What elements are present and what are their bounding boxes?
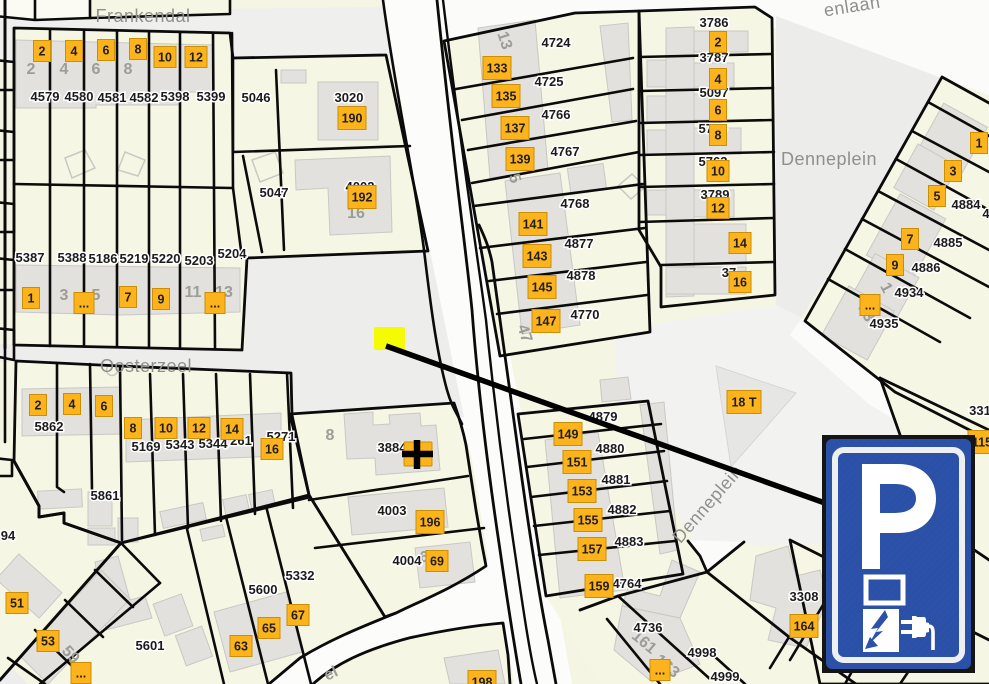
svg-text:5398: 5398 [161, 89, 190, 104]
svg-text:4882: 4882 [608, 502, 637, 517]
svg-text:133: 133 [487, 62, 508, 76]
svg-text:5204: 5204 [218, 246, 248, 261]
svg-text:4: 4 [60, 61, 69, 78]
svg-text:51: 51 [10, 597, 24, 611]
svg-text:4880: 4880 [596, 441, 625, 456]
svg-text:155: 155 [578, 514, 599, 528]
svg-text:4724: 4724 [542, 35, 572, 50]
svg-text:5219: 5219 [120, 251, 149, 266]
svg-text:137: 137 [505, 122, 526, 136]
svg-text:4877: 4877 [565, 236, 594, 251]
svg-text:5399: 5399 [197, 89, 226, 104]
svg-text:18 T: 18 T [731, 396, 756, 410]
svg-text:151: 151 [567, 456, 588, 470]
svg-text:69: 69 [430, 555, 444, 569]
svg-text:9: 9 [892, 259, 899, 273]
svg-text:5388: 5388 [58, 250, 87, 265]
svg-text:147: 147 [536, 315, 557, 329]
svg-text:4: 4 [69, 398, 76, 412]
svg-text:4886: 4886 [912, 260, 941, 275]
svg-text:5601: 5601 [136, 638, 165, 653]
svg-text:67: 67 [291, 609, 305, 623]
svg-text:4580: 4580 [65, 89, 94, 104]
svg-text:141: 141 [523, 218, 544, 232]
svg-text:9: 9 [158, 293, 165, 307]
svg-text:5046: 5046 [242, 90, 271, 105]
svg-text:3308: 3308 [790, 589, 819, 604]
svg-text:...: ... [655, 664, 665, 678]
svg-text:4736: 4736 [634, 620, 663, 635]
svg-text:1: 1 [976, 137, 983, 151]
svg-text:4003: 4003 [378, 503, 407, 518]
svg-text:6: 6 [715, 104, 722, 118]
svg-text:4766: 4766 [542, 107, 571, 122]
svg-text:16: 16 [733, 276, 747, 290]
svg-text:5343: 5343 [166, 437, 195, 452]
svg-text:4579: 4579 [31, 89, 60, 104]
svg-text:...: ... [865, 299, 875, 313]
svg-text:10: 10 [159, 422, 173, 436]
svg-text:12: 12 [192, 422, 206, 436]
svg-text:190: 190 [342, 112, 363, 126]
svg-text:14: 14 [733, 237, 747, 251]
svg-text:4004: 4004 [393, 553, 423, 568]
svg-text:3786: 3786 [700, 15, 729, 30]
svg-text:4935: 4935 [870, 316, 899, 331]
svg-text:3: 3 [950, 165, 957, 179]
svg-text:5600: 5600 [249, 582, 278, 597]
svg-text:16: 16 [265, 443, 279, 457]
svg-text:4934: 4934 [895, 285, 925, 300]
svg-text:4999: 4999 [711, 669, 740, 684]
svg-text:12: 12 [711, 202, 725, 216]
svg-text:4883: 4883 [615, 534, 644, 549]
svg-text:2: 2 [35, 399, 42, 413]
svg-text:164: 164 [794, 620, 815, 634]
svg-text:5332: 5332 [286, 568, 315, 583]
svg-text:8: 8 [326, 427, 335, 444]
svg-text:...: ... [210, 297, 220, 311]
svg-text:5169: 5169 [132, 439, 161, 454]
svg-text:63: 63 [234, 640, 248, 654]
svg-text:6: 6 [92, 61, 101, 78]
svg-text:139: 139 [510, 153, 531, 167]
svg-text:5220: 5220 [152, 251, 181, 266]
svg-text:65: 65 [262, 622, 276, 636]
svg-text:5862: 5862 [35, 419, 64, 434]
svg-text:8: 8 [715, 129, 722, 143]
svg-text:5203: 5203 [185, 253, 214, 268]
svg-text:Oosterzeel: Oosterzeel [100, 356, 192, 376]
svg-text:5: 5 [934, 190, 941, 204]
svg-text:8: 8 [124, 61, 133, 78]
svg-text:4767: 4767 [551, 144, 580, 159]
svg-text:4770: 4770 [571, 307, 600, 322]
svg-text:331: 331 [969, 403, 989, 418]
svg-text:Frankendal: Frankendal [95, 6, 190, 26]
svg-text:4884: 4884 [952, 197, 982, 212]
svg-text:2: 2 [27, 61, 36, 78]
svg-text:Denneplein: Denneplein [781, 149, 877, 169]
svg-text:157: 157 [582, 543, 603, 557]
svg-text:8: 8 [130, 422, 137, 436]
svg-text:4725: 4725 [535, 74, 564, 89]
svg-text:14: 14 [225, 423, 239, 437]
svg-text:149: 149 [558, 428, 579, 442]
svg-text:2: 2 [715, 36, 722, 50]
svg-text:4885: 4885 [934, 235, 963, 250]
svg-text:159: 159 [589, 580, 610, 594]
svg-text:6: 6 [103, 44, 110, 58]
svg-text:5861: 5861 [91, 488, 120, 503]
svg-text:7: 7 [125, 291, 132, 305]
svg-text:1: 1 [28, 292, 35, 306]
svg-text:3: 3 [60, 287, 69, 304]
svg-text:135: 135 [496, 90, 517, 104]
svg-text:2: 2 [39, 45, 46, 59]
svg-text:4: 4 [715, 73, 722, 87]
svg-text:8: 8 [135, 43, 142, 57]
svg-text:4581: 4581 [98, 90, 127, 105]
svg-text:4768: 4768 [561, 196, 590, 211]
svg-text:...: ... [79, 297, 89, 311]
svg-text:4998: 4998 [688, 645, 717, 660]
svg-text:3020: 3020 [335, 90, 364, 105]
svg-text:4: 4 [71, 45, 78, 59]
svg-text:143: 143 [527, 250, 548, 264]
svg-text:5047: 5047 [260, 185, 289, 200]
svg-text:10: 10 [711, 165, 725, 179]
svg-text:192: 192 [352, 191, 373, 205]
svg-text:11: 11 [185, 284, 202, 301]
svg-text:4881: 4881 [602, 472, 631, 487]
svg-text:94: 94 [1, 528, 16, 543]
svg-text:6: 6 [101, 400, 108, 414]
svg-text:145: 145 [532, 281, 553, 295]
svg-text:4582: 4582 [130, 90, 159, 105]
svg-text:5186: 5186 [89, 251, 118, 266]
svg-text:53: 53 [41, 635, 55, 649]
svg-text:153: 153 [572, 485, 593, 499]
svg-text:4: 4 [982, 206, 989, 221]
svg-text:...: ... [76, 667, 86, 681]
svg-text:7: 7 [907, 233, 914, 247]
svg-text:198: 198 [472, 676, 493, 684]
svg-text:5387: 5387 [16, 250, 45, 265]
svg-text:12: 12 [189, 51, 203, 65]
svg-text:196: 196 [420, 516, 441, 530]
svg-text:4878: 4878 [567, 268, 596, 283]
svg-text:10: 10 [158, 51, 172, 65]
svg-text:4764: 4764 [613, 576, 643, 591]
